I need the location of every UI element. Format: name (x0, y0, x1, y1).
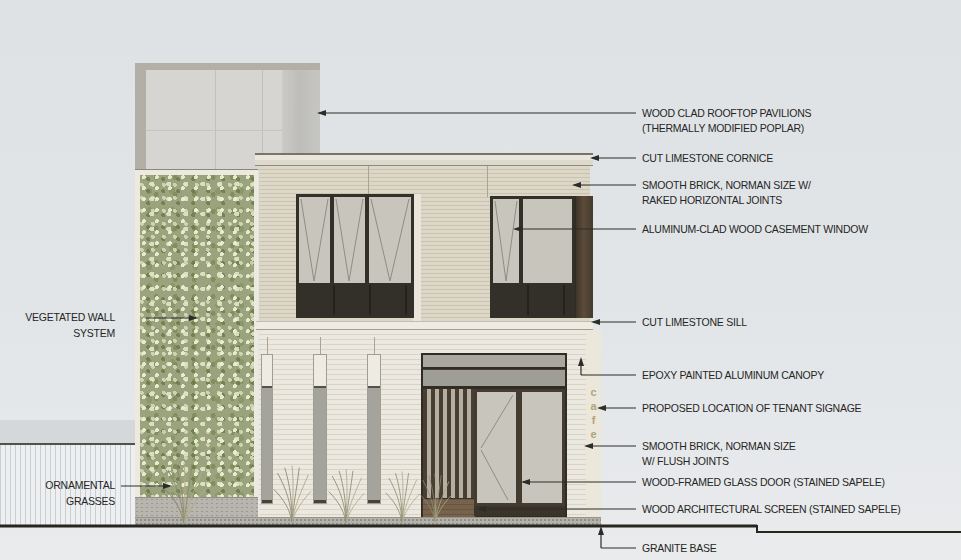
ornamental-grass-clump (272, 462, 312, 524)
brick-joint-line (267, 337, 268, 354)
callout-wood-screen: WOOD ARCHITECTURAL SCREEN (STAINED SAPEL… (642, 502, 900, 517)
background-wall-band (0, 420, 135, 444)
slot-window-glass (262, 386, 272, 503)
callout-vegetated-wall: VEGETATED WALL SYSTEM (8, 310, 115, 341)
aluminum-canopy-lower (423, 370, 565, 389)
slot-window (313, 354, 327, 504)
wood-spandrel-panel (299, 285, 411, 315)
casement-window-right (490, 196, 575, 318)
callout-brick-raked-joints: SMOOTH BRICK, NORMAN SIZE W/ RAKED HORIZ… (642, 178, 811, 208)
signage-letter: a (590, 401, 596, 412)
callout-granite-base: GRANITE BASE (642, 541, 717, 556)
signage-letter: e (590, 429, 596, 440)
limestone-cornice (255, 153, 593, 166)
window-pane (334, 197, 365, 283)
ornamental-grass-clump (162, 460, 206, 524)
window-pane (369, 197, 411, 283)
ornamental-grass-clump (418, 470, 452, 524)
wood-framed-glass-door (474, 389, 519, 506)
limestone-sill-band (256, 321, 593, 330)
slot-window (367, 354, 381, 504)
brick-joint-line (320, 337, 321, 354)
window-pane (299, 197, 330, 283)
window-pane (493, 199, 519, 283)
pavilion-mullion (215, 70, 216, 171)
brick-joint-line (368, 166, 369, 195)
callout-brick-flush-joints: SMOOTH BRICK, NORMAN SIZE W/ FLUSH JOINT… (642, 439, 796, 469)
window-reveal (413, 194, 421, 321)
vegetated-wall-planting (140, 175, 254, 497)
slot-window-glass (368, 386, 380, 503)
callout-tenant-signage: PROPOSED LOCATION OF TENANT SIGNAGE (642, 401, 861, 416)
brick-joint-line (487, 166, 488, 197)
signage-letter: f (592, 415, 596, 426)
callout-ornamental-grasses: ORNAMENTAL GRASSES (8, 478, 115, 509)
wood-spandrel-panel (493, 285, 572, 315)
callout-aluminum-canopy: EPOXY PAINTED ALUMINUM CANOPY (642, 368, 824, 383)
window-pane (523, 199, 572, 283)
storefront-base-rail (474, 506, 565, 516)
slot-window-glass (314, 386, 326, 503)
casement-window-left (296, 194, 414, 318)
tenant-signage: c a f e (586, 387, 601, 440)
door-sidelite (519, 389, 565, 506)
signage-letter: c (590, 387, 596, 398)
callout-limestone-sill: CUT LIMESTONE SILL (642, 315, 747, 330)
aluminum-canopy-upper (423, 355, 565, 369)
callout-casement-window: ALUMINUM-CLAD WOOD CASEMENT WINDOW (642, 222, 868, 237)
callout-glass-door: WOOD-FRAMED GLASS DOOR (STAINED SAPELE) (642, 475, 885, 490)
ornamental-grass-clump (327, 466, 365, 524)
callout-limestone-cornice: CUT LIMESTONE CORNICE (642, 151, 773, 166)
ornamental-grass-clump (384, 468, 420, 524)
callout-rooftop-pavilions: WOOD CLAD ROOFTOP PAVILIONS (THERMALLY M… (642, 106, 811, 136)
elevation-drawing: c a f e WOOD CLAD R (0, 0, 961, 560)
brick-joint-line (374, 337, 375, 354)
wood-screen-fin (575, 196, 593, 318)
